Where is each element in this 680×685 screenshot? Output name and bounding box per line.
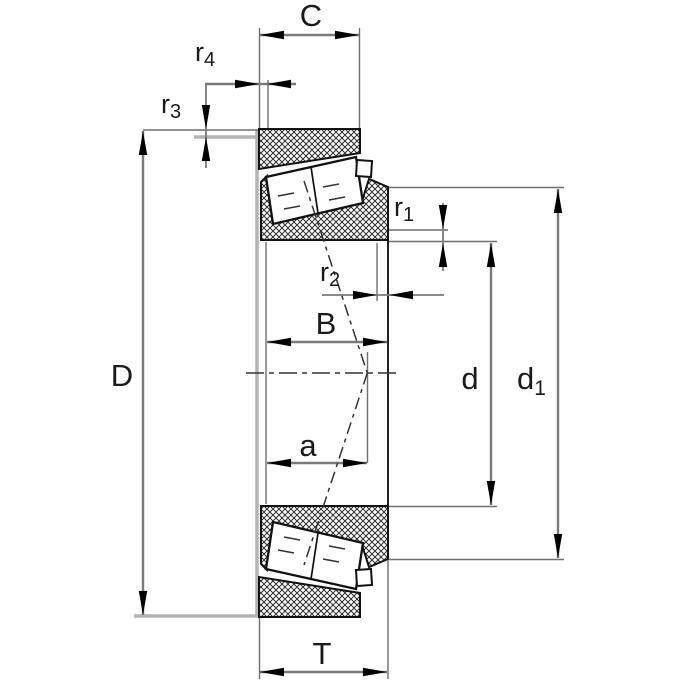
label-chamfer-r3: r3: [161, 89, 181, 123]
label-total-width-T: T: [313, 636, 332, 671]
label-chamfer-r1: r1: [394, 192, 414, 226]
abutment-lines: [134, 130, 258, 616]
bearing-upper-half: [259, 129, 388, 240]
label-outside-diameter-D: D: [111, 358, 133, 393]
label-shoulder-diameter-d1: d1: [517, 361, 546, 400]
label-inner-ring-width-B: B: [316, 306, 337, 341]
bearing-dimension-drawing: C r4 r3 D r1 r2 B a d d1 T: [0, 0, 680, 680]
label-bore-diameter-d: d: [461, 361, 478, 396]
bearing-lower-half: [259, 506, 388, 617]
drawing-canvas: C r4 r3 D r1 r2 B a d d1 T: [0, 0, 680, 680]
label-chamfer-r4: r4: [195, 37, 215, 71]
label-pressure-center-a: a: [299, 428, 317, 463]
label-outer-ring-width-C: C: [300, 0, 322, 33]
